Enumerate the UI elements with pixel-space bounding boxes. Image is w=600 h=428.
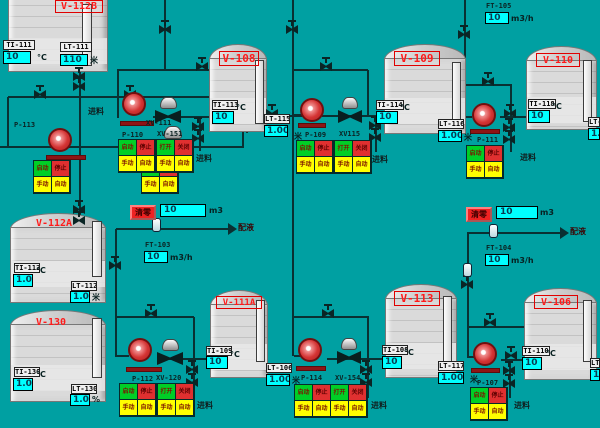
control-grid-pump: 启动停止手动自动 <box>33 160 71 194</box>
pump-base-icon <box>296 366 326 371</box>
control-grid-pump: 启动停止手动自动 <box>466 145 504 179</box>
lt-value: 1.00 <box>438 130 462 142</box>
grid-cell-auto[interactable]: 自动 <box>485 162 502 177</box>
control-grid-pump: 启动停止手动自动 <box>294 384 332 418</box>
grid-cell-auto[interactable]: 自动 <box>138 400 155 415</box>
grid-cell-stop[interactable]: 停止 <box>485 146 502 161</box>
manual-valve-bowtie <box>73 82 85 91</box>
pipe <box>367 317 369 359</box>
totalizer-unit: m3 <box>540 208 554 217</box>
pipe <box>468 326 524 328</box>
ft-unit: m3/h <box>511 256 534 265</box>
ti-value: 10 <box>522 357 542 370</box>
grid-cell-stop[interactable]: 关闭 <box>175 140 192 155</box>
grid-cell-manual[interactable]: 手动 <box>157 156 174 171</box>
manual-valve-bowtie <box>109 261 121 270</box>
manual-valve-icon <box>484 318 496 327</box>
tank-level-gauge <box>255 60 264 124</box>
grid-cell-stop[interactable]: 停止 <box>52 161 69 176</box>
xv-valve-label: XV-154 <box>335 374 360 382</box>
tank-name: V-112B <box>55 0 103 13</box>
manual-valve-bowtie <box>196 62 208 71</box>
grid-cell-start[interactable]: 打开 <box>331 385 348 400</box>
grid-cell-auto[interactable]: 自动 <box>52 177 69 192</box>
tank-name: V-111A <box>216 296 262 309</box>
tank-level-gauge <box>583 300 592 362</box>
ti-tag-label: TI-109 <box>206 346 232 356</box>
xv-valve-label: XV115 <box>339 130 360 138</box>
pipe <box>193 317 195 359</box>
feed-label: 进料 <box>514 400 530 411</box>
tank-name: V-106 <box>534 295 578 309</box>
grid-cell-start[interactable]: 启动 <box>297 141 314 156</box>
ti-value: 10 <box>212 111 234 124</box>
ti-value: 10 <box>376 111 398 124</box>
pipe <box>7 97 9 148</box>
level-unit: 米 <box>464 132 472 143</box>
dosing-label: 配液 <box>238 222 254 233</box>
ti-value: 10 <box>3 51 31 64</box>
pump-icon-p107[interactable] <box>471 342 500 373</box>
grid-cell-manual[interactable]: 手动 <box>34 177 51 192</box>
grid-cell-stop[interactable]: 停止 <box>315 141 332 156</box>
tank-level-gauge <box>443 296 452 362</box>
grid-cell-manual[interactable]: 手动 <box>120 400 137 415</box>
flow-sensor-icon <box>489 224 498 238</box>
pump-label: P-114 <box>301 374 322 382</box>
manual-valve-bowtie <box>505 351 517 360</box>
level-unit: 米 <box>294 131 302 142</box>
pump-fan-icon <box>48 128 72 152</box>
pipe <box>164 0 166 70</box>
manual-valve-icon <box>461 280 473 289</box>
control-grid-pump: 启动停止手动自动 <box>470 387 508 421</box>
control-grid-valve: 打开关闭手动自动 <box>334 140 372 174</box>
feed-label: 进料 <box>197 400 213 411</box>
tank-name: V-112A <box>26 218 82 230</box>
control-grid-pump: 启动停止手动自动 <box>296 140 334 174</box>
temp-unit: °C <box>37 53 47 62</box>
grid-cell-auto[interactable]: 自动 <box>313 401 330 416</box>
pump-base-icon <box>298 123 326 128</box>
grid-cell-auto[interactable]: 自动 <box>176 400 193 415</box>
lt-value: 1.00 <box>264 125 288 137</box>
lt-tag-label: LT-116 <box>438 119 464 129</box>
valve-actuator-dome-icon <box>160 97 177 109</box>
manual-valve-bowtie <box>286 25 298 34</box>
feed-label: 进料 <box>196 153 212 164</box>
manual-valve-bowtie <box>145 309 157 318</box>
lt-tag-label: LT-112 <box>71 281 97 291</box>
ft-value: 10 <box>144 251 168 263</box>
level-unit: % <box>92 395 100 404</box>
manual-valve-icon <box>504 109 516 118</box>
pipe <box>467 232 469 358</box>
reset-button[interactable]: 清零 <box>130 205 156 220</box>
level-unit: 米 <box>90 55 98 66</box>
pipe <box>367 70 369 117</box>
manual-valve-icon <box>196 62 208 71</box>
xv-valve-label: XV-151 <box>157 130 182 138</box>
grid-cell-stop[interactable]: 关闭 <box>353 141 370 156</box>
lt-value: 1.00 <box>70 291 90 303</box>
lt-value: 1.0 <box>588 128 600 140</box>
tank-name: V-109 <box>394 51 440 66</box>
tank-name: V-110 <box>536 53 580 67</box>
grid-cell-auto[interactable]: 自动 <box>175 156 192 171</box>
ft-unit: m3/h <box>511 14 534 23</box>
manual-valve-bowtie <box>458 30 470 39</box>
grid-cell-manual[interactable]: 手动 <box>119 156 136 171</box>
ft-tag-label: FT-105 <box>486 2 511 10</box>
grid-cell-start[interactable]: 启动 <box>471 388 488 403</box>
manual-valve-icon <box>286 25 298 34</box>
pipe <box>468 232 560 234</box>
pump-fan-icon <box>298 338 322 362</box>
lt-tag-label: LT-115 <box>264 114 290 124</box>
ti-value: 10 <box>528 110 550 123</box>
xv-valve-icon-xv115[interactable] <box>338 110 362 123</box>
feed-label: 进料 <box>371 400 387 411</box>
tank-name: V-113 <box>394 291 440 306</box>
grid-cell-auto[interactable]: 自动 <box>353 157 370 172</box>
reset-button[interactable]: 清零 <box>466 207 492 222</box>
grid-cell-start[interactable]: 启动 <box>467 146 484 161</box>
grid-cell-stop[interactable]: 关闭 <box>349 385 366 400</box>
grid-cell-stop[interactable]: 停止 <box>313 385 330 400</box>
grid-cell-start[interactable]: 启动 <box>120 384 137 399</box>
grid-cell-stop[interactable]: 停止 <box>138 384 155 399</box>
ti-value: 1.0 <box>13 378 33 391</box>
manual-valve-bowtie <box>34 90 46 99</box>
manual-valve-bowtie <box>461 280 473 289</box>
temp-unit: °C <box>36 266 46 275</box>
manual-valve-icon <box>503 135 515 144</box>
manual-valve-icon <box>109 261 121 270</box>
lt-value: 1.00 <box>266 374 290 386</box>
totalizer-unit: m3 <box>209 206 223 215</box>
control-grid-pump: 启动停止手动自动 <box>119 383 157 417</box>
feed-label: 进料 <box>520 152 536 163</box>
manual-valve-bowtie <box>322 309 334 318</box>
totalizer-value: 10 <box>496 206 538 219</box>
manual-valve-icon <box>73 82 85 91</box>
tank-level-gauge <box>583 60 592 122</box>
tank-level-gauge <box>92 221 102 277</box>
manual-valve-bowtie <box>484 318 496 327</box>
grid-cell-manual[interactable]: 手动 <box>467 162 484 177</box>
manual-valve-icon <box>482 77 494 86</box>
valve-actuator-dome-icon <box>342 97 358 109</box>
ti-tag-label: TI-111 <box>3 40 35 50</box>
xv-valve-label: XV-120 <box>156 374 181 382</box>
grid-cell-manual[interactable]: 手动 <box>158 400 175 415</box>
manual-valve-icon <box>322 309 334 318</box>
grid-cell-stop[interactable]: 关闭 <box>176 384 193 399</box>
lt-value: 1.0 <box>70 394 90 406</box>
grid-cell-auto[interactable]: 自动 <box>489 404 506 419</box>
grid-cell-auto[interactable]: 自动 <box>349 401 366 416</box>
grid-cell-auto[interactable]: 自动 <box>160 177 177 192</box>
grid-cell-stop[interactable]: 停止 <box>489 388 506 403</box>
valve-actuator-dome-icon <box>341 338 357 350</box>
manual-valve-icon <box>145 309 157 318</box>
flow-sensor-icon <box>152 218 161 232</box>
grid-cell-start[interactable]: 打开 <box>335 141 352 156</box>
manual-valve-icon <box>159 25 171 34</box>
pump-base-icon <box>470 129 500 134</box>
pump-icon-p112[interactable] <box>126 338 162 372</box>
ft-value: 10 <box>485 254 509 266</box>
lt-tag-label: LT-117 <box>438 361 464 371</box>
grid-cell-start[interactable]: 打开 <box>158 384 175 399</box>
lt-tag-label: LT-1 <box>590 358 600 368</box>
manual-valve-icon <box>505 351 517 360</box>
ti-value: 10 <box>206 356 228 369</box>
pipe <box>115 229 117 356</box>
xv-valve-icon-xv154[interactable] <box>337 351 361 364</box>
hmi-screen: V-112BTI-11110°CLT-111110米V-108TI-11310°… <box>0 0 600 428</box>
pipe <box>292 0 294 356</box>
feed-label: 进料 <box>372 154 388 165</box>
ti-value: 1.0 <box>13 274 33 287</box>
control-grid-valve: 打开关闭手动自动 <box>156 139 194 173</box>
lt-tag-label: LT-1 <box>588 117 600 127</box>
grid-cell-stop[interactable]: 停止 <box>137 140 154 155</box>
totalizer-value: 10 <box>160 204 206 217</box>
grid-cell-auto[interactable]: 自动 <box>137 156 154 171</box>
tank-level-gauge <box>256 300 265 362</box>
flow-arrow-icon <box>228 223 237 235</box>
flow-arrow-icon <box>560 227 569 239</box>
temp-unit: °C <box>400 103 410 112</box>
flow-sensor-icon <box>463 263 472 277</box>
pump-icon-p111[interactable] <box>470 103 500 134</box>
pump-label: P-113 <box>14 121 35 129</box>
ft-tag-label: FT-103 <box>145 241 170 249</box>
temp-unit: °C <box>230 350 240 359</box>
lt-value: 1.0 <box>590 369 600 381</box>
grid-cell-manual[interactable]: 手动 <box>297 157 314 172</box>
temp-unit: °C <box>36 370 46 379</box>
manual-valve-bowtie <box>482 77 494 86</box>
valve-actuator-dome-icon <box>162 339 179 351</box>
manual-valve-bowtie <box>159 25 171 34</box>
manual-valve-icon <box>458 30 470 39</box>
control-grid-pump: 启动停止手动自动 <box>118 139 156 173</box>
pipe <box>116 228 229 230</box>
xv-valve-icon-xv120[interactable] <box>157 352 183 365</box>
grid-cell-manual[interactable]: 手动 <box>335 157 352 172</box>
grid-cell-manual[interactable]: 手动 <box>471 404 488 419</box>
pump-label: P-111 <box>477 136 498 144</box>
lt-tag-label: LT-130 <box>71 384 97 394</box>
pump-icon-p114[interactable] <box>296 338 326 371</box>
ti-tag-label: TI-113 <box>212 100 238 110</box>
control-grid-valve: 打开关闭手动自动 <box>157 383 195 417</box>
grid-cell-start[interactable]: 启动 <box>119 140 136 155</box>
grid-cell-start[interactable]: 启动 <box>34 161 51 176</box>
pump-fan-icon <box>472 103 496 127</box>
temp-unit: °C <box>404 348 414 357</box>
pump-fan-icon <box>128 338 152 362</box>
ft-unit: m3/h <box>170 253 193 262</box>
pump-base-icon <box>126 367 162 372</box>
lt-tag-label: LT-106 <box>266 363 292 373</box>
grid-cell-manual[interactable]: 手动 <box>295 401 312 416</box>
pump-label: P-107 <box>477 379 498 387</box>
pump-base-icon <box>471 368 500 373</box>
grid-cell-start[interactable]: 启动 <box>295 385 312 400</box>
pump-label: P-110 <box>122 131 143 139</box>
control-grid-valve: 打开关闭手动自动 <box>330 384 368 418</box>
tank-level-gauge <box>452 62 461 126</box>
pump-icon-p109[interactable] <box>298 98 326 128</box>
manual-valve-bowtie <box>503 135 515 144</box>
lt-tag-label: LT-111 <box>60 42 92 52</box>
tank-name: V-108 <box>219 51 259 66</box>
temp-unit: °C <box>236 103 246 112</box>
temp-unit: °C <box>546 349 556 358</box>
grid-cell-auto[interactable]: 自动 <box>315 157 332 172</box>
xv-valve-label: XV-111 <box>146 119 171 127</box>
manual-valve-bowtie <box>504 109 516 118</box>
tank-name: V-130 <box>26 317 76 329</box>
grid-cell-manual[interactable]: 手动 <box>331 401 348 416</box>
lt-value: 110 <box>60 54 88 66</box>
manual-valve-bowtie <box>320 62 332 71</box>
pipe <box>117 70 119 118</box>
pump-label: P-109 <box>305 131 326 139</box>
pump-fan-icon <box>122 92 146 116</box>
level-unit: 米 <box>92 292 100 303</box>
grid-cell-manual[interactable]: 手动 <box>142 177 159 192</box>
temp-unit: °C <box>552 102 562 111</box>
pump-fan-icon <box>473 342 497 366</box>
level-unit: 米 <box>292 375 300 386</box>
manual-valve-icon <box>320 62 332 71</box>
tank-level-gauge <box>92 318 102 378</box>
pump-icon-p113[interactable] <box>46 128 86 160</box>
grid-cell-start[interactable]: 打开 <box>157 140 174 155</box>
ft-value: 10 <box>485 12 509 24</box>
pump-fan-icon <box>300 98 324 122</box>
manual-valve-icon <box>34 90 46 99</box>
ft-tag-label: FT-104 <box>486 244 511 252</box>
dosing-label: 配液 <box>570 226 586 237</box>
pump-label: P-112 <box>132 375 153 383</box>
feed-label: 进料 <box>88 106 104 117</box>
ti-value: 10 <box>382 356 402 369</box>
lt-value: 1.00 <box>438 372 464 384</box>
